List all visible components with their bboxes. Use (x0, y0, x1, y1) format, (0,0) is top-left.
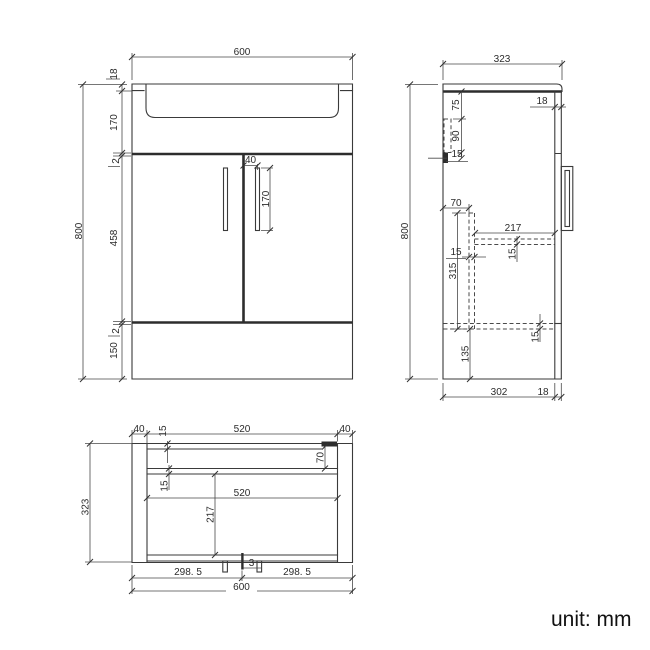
plan-dim-door-gap: 3 (249, 558, 255, 569)
front-dim-handle-length: 170 (261, 190, 272, 207)
plan-dim-rail-thickness: 15 (160, 480, 171, 492)
side-dim-height: 800 (400, 222, 411, 239)
side-dim-door-thickness: 18 (537, 387, 549, 398)
plan-end-panels (147, 444, 338, 563)
side-dim-bracket-height: 90 (451, 130, 462, 142)
plan-view: 40 15 520 40 323 70 15 520 217 3 298. 5 … (81, 424, 356, 594)
front-dim-door-height: 458 (109, 229, 120, 246)
front-left-door-handle (224, 168, 228, 231)
plan-dim-total-width: 600 (233, 582, 250, 593)
front-dim-height: 800 (74, 222, 85, 239)
side-dim-body-depth: 302 (491, 387, 508, 398)
side-dim-depth: 323 (494, 54, 511, 65)
front-dim-gap-top: 2 (111, 158, 122, 164)
side-dim-plinth-height: 135 (461, 345, 472, 362)
side-dim-shelf-depth: 217 (505, 223, 522, 234)
side-dim-front-panel-thickness: 18 (536, 96, 548, 107)
side-view: 323 800 18 75 90 15 70 315 15 217 15 15 … (400, 54, 573, 401)
side-dim-bracket-foot: 15 (451, 149, 463, 160)
front-dimension-lines (83, 57, 353, 379)
plan-dim-right-panel: 40 (339, 424, 351, 435)
front-right-door-handle (256, 168, 260, 231)
plan-dim-depth: 323 (81, 498, 92, 515)
side-extension-lines (405, 60, 562, 401)
side-handle-inner (565, 171, 570, 227)
front-view: 600 800 18 170 2 458 2 150 40 170 (74, 47, 356, 382)
side-dimension-lines (410, 64, 566, 397)
front-basin-profile (132, 84, 353, 118)
plan-dim-right-door-width: 298. 5 (283, 567, 311, 578)
front-dim-plinth-height: 150 (109, 342, 120, 359)
side-dim-partition-height: 315 (448, 262, 459, 279)
side-dim-bottom-panel-thickness: 15 (531, 331, 542, 343)
plan-dim-shelf-width: 520 (234, 488, 251, 499)
side-handle-outer (561, 167, 573, 231)
plan-wall-bracket (322, 442, 338, 447)
side-dim-partition-offset: 70 (450, 198, 462, 209)
plan-rail-lines (147, 469, 338, 475)
side-dim-partition-thickness: 15 (450, 247, 462, 258)
side-dimension-ticks (407, 61, 565, 400)
side-wall-bracket-hidden (444, 119, 451, 153)
plan-dim-inner-width: 520 (234, 424, 251, 435)
technical-drawing: 600 800 18 170 2 458 2 150 40 170 323 80… (0, 0, 650, 650)
side-dim-shelf-thickness: 15 (508, 248, 519, 260)
front-dim-width: 600 (234, 47, 251, 58)
unit-note: unit: mm (551, 608, 632, 631)
plan-dim-back-panel-thickness: 15 (158, 425, 169, 437)
plan-door-gap-mark (241, 553, 243, 570)
plan-dimension-lines (90, 434, 353, 591)
plan-extension-lines (85, 430, 353, 594)
side-door-faces (555, 92, 562, 380)
front-dim-gap-bottom: 2 (111, 328, 122, 334)
front-dim-handle-offset: 40 (245, 155, 257, 166)
drawing-page: 600 800 18 170 2 458 2 150 40 170 323 80… (0, 0, 650, 650)
plan-dim-bracket-offset: 70 (316, 452, 327, 464)
plan-dim-left-panel: 40 (133, 424, 145, 435)
side-dim-bracket-offset: 75 (451, 99, 462, 111)
plan-dim-left-door-width: 298. 5 (174, 567, 202, 578)
side-partition-hidden (469, 213, 475, 329)
plan-dim-shelf-depth: 217 (206, 506, 217, 523)
front-dim-counter-thickness: 18 (109, 68, 120, 80)
front-dim-basin-depth: 170 (109, 114, 120, 131)
